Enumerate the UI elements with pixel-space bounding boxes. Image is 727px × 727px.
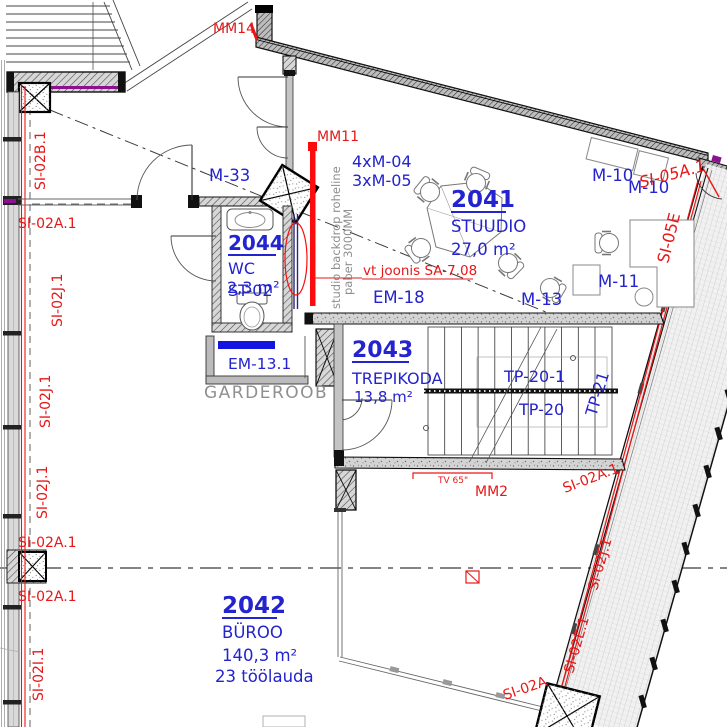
label-tv: TV 65" xyxy=(437,476,468,486)
room-labels: 2041 STUUDIO 27,0 m² 2042 BÜROO 140,3 m²… xyxy=(215,187,526,686)
label-m10-1: M-10 xyxy=(592,166,633,185)
room-name-2044: WC xyxy=(228,259,255,278)
sink xyxy=(227,209,273,230)
label-em18: EM-18 xyxy=(373,288,425,307)
room-number-2043: 2043 xyxy=(352,338,413,363)
room-code-st02: ST-02 xyxy=(228,281,273,300)
label-mm11: MM11 xyxy=(317,129,359,145)
label-tp20: TP-20 xyxy=(518,400,564,419)
label-m33: M-33 xyxy=(209,166,250,185)
label-m05: 3xM-05 xyxy=(352,171,412,190)
label-em13-1: EM-13.1 xyxy=(228,355,291,373)
label-m13: M-13 xyxy=(521,290,562,309)
section-mark: SI-02A.1 xyxy=(18,535,77,551)
section-mark: SI-02I.1 xyxy=(31,648,47,701)
room-name-2041: STUUDIO xyxy=(451,217,526,236)
room-desks-2042: 23 töölauda xyxy=(215,667,314,686)
section-mark: SI-02J.1 xyxy=(50,274,66,327)
room-number-2042: 2042 xyxy=(222,593,286,619)
wall-left xyxy=(2,60,23,727)
note-backdrop-2: paber 3000MM xyxy=(341,209,355,295)
label-mm2: MM2 xyxy=(475,484,508,500)
note-see-drawing: vt joonis SA-7.08 xyxy=(363,263,477,279)
wall-interior-vertical xyxy=(238,56,296,177)
room-area-2043: 13,8 m² xyxy=(354,388,413,406)
room-number-2041: 2041 xyxy=(451,187,515,213)
floor-plan-drawing: 2041 STUUDIO 27,0 m² 2042 BÜROO 140,3 m²… xyxy=(0,0,727,727)
section-mark: SI-02A.1 xyxy=(18,589,77,605)
section-mark: SI-02J.1 xyxy=(38,375,54,428)
room-area-2041: 27,0 m² xyxy=(451,240,516,259)
section-mark: SI-02J.1 xyxy=(35,466,51,519)
wall-north xyxy=(255,5,727,177)
column-left-mid xyxy=(7,550,46,583)
note-garderoob: GARDEROOB xyxy=(204,383,328,403)
room-number-2044: 2044 xyxy=(228,231,284,255)
room-name-2043: TREPIKODA xyxy=(351,369,443,388)
label-tp21: TP-21 xyxy=(581,369,613,419)
section-mark: SI-02B.1 xyxy=(33,131,49,190)
label-m04: 4xM-04 xyxy=(352,152,412,171)
floor-plan-page: 2041 STUUDIO 27,0 m² 2042 BÜROO 140,3 m²… xyxy=(0,0,727,727)
label-tp20-1: TP-20-1 xyxy=(503,367,565,386)
room-area-2042: 140,3 m² xyxy=(222,646,297,665)
label-m11: M-11 xyxy=(598,272,639,291)
wardrobe-rail xyxy=(218,341,275,349)
room-name-2042: BÜROO xyxy=(222,623,283,642)
section-mark: SI-02A.1 xyxy=(18,216,77,232)
label-mm14: MM14 xyxy=(213,21,255,37)
partition-glass xyxy=(334,508,543,711)
section-line-left xyxy=(22,86,26,727)
section-marks-left: SI-02B.1 SI-02A.1 SI-02J.1 SI-02J.1 SI-0… xyxy=(18,131,77,701)
